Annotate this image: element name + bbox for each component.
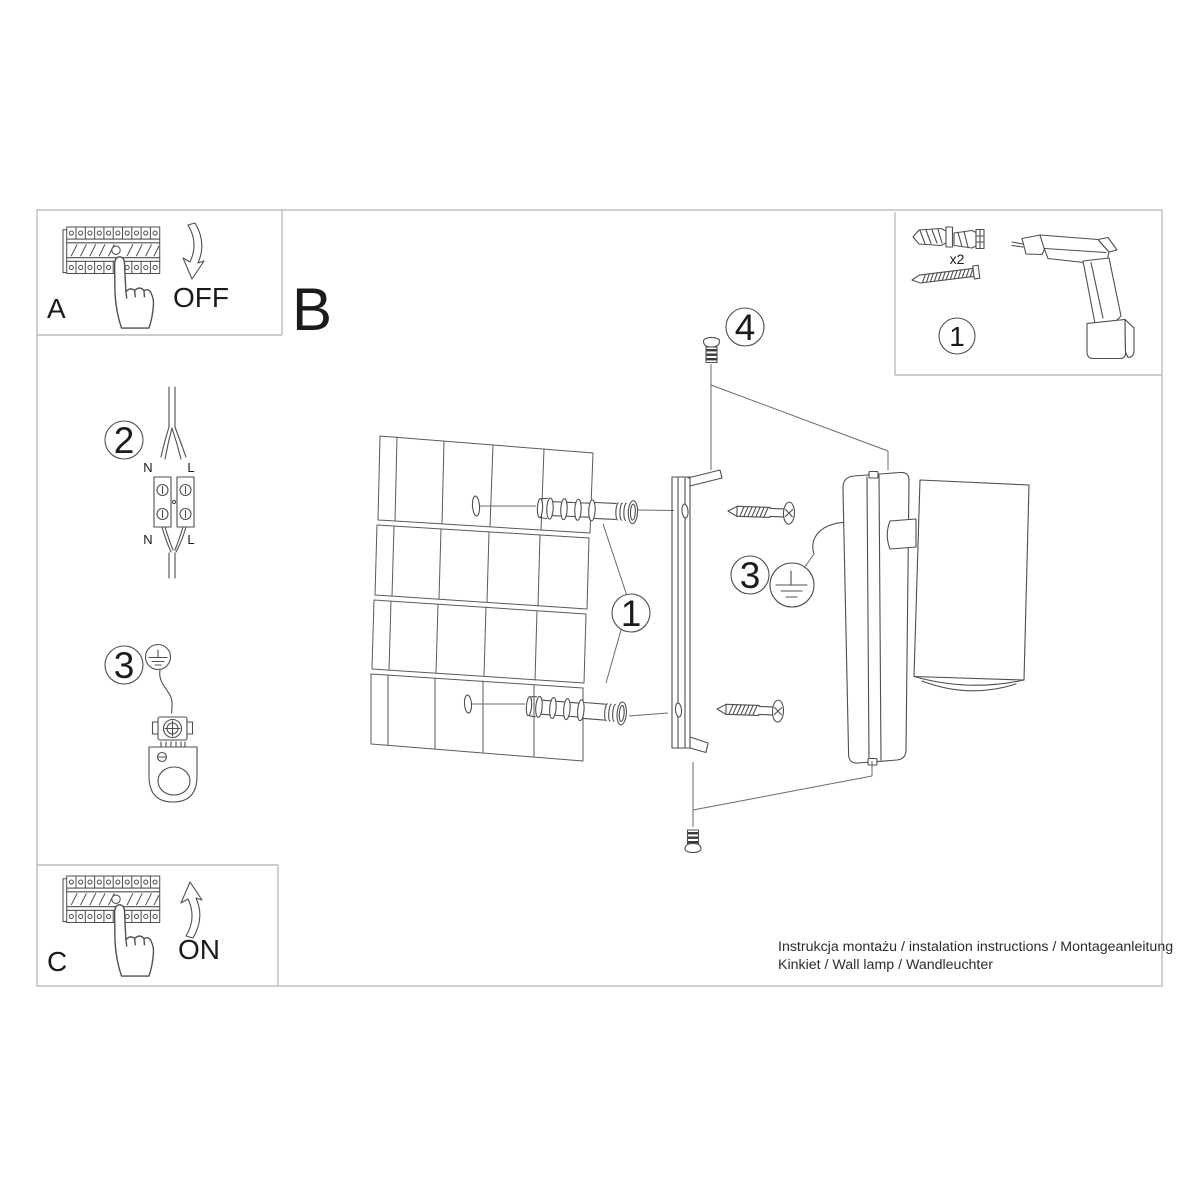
fixing-screw-bottom xyxy=(685,830,701,853)
tile-wall xyxy=(371,436,593,761)
lamp-bracket-piece xyxy=(149,747,197,802)
cable-top xyxy=(169,387,175,427)
drill-icon xyxy=(1012,235,1134,359)
panel-c-label: C xyxy=(47,946,67,977)
leader-screw-top xyxy=(711,364,888,470)
cable-bottom xyxy=(169,553,175,578)
quantity-label: x2 xyxy=(950,251,965,267)
wall-plug-assembly-bottom xyxy=(525,694,627,725)
panel-b-label: B xyxy=(292,276,332,343)
leader-ground xyxy=(804,554,814,568)
wall-plug-icon xyxy=(913,227,953,247)
earth-clamp xyxy=(153,717,193,747)
wall-plug-icon-2 xyxy=(954,230,984,249)
footer-line-2: Kinkiet / Wall lamp / Wandleuchter xyxy=(778,957,993,973)
callout-top-screw: 4 xyxy=(726,307,764,348)
lamp-back-plate xyxy=(843,472,909,763)
panel-a-label: A xyxy=(47,293,66,324)
step-grounding: 3 xyxy=(105,645,197,803)
wires-split-top xyxy=(161,427,186,459)
mounting-screw-bottom xyxy=(717,698,784,722)
bracket-hole-top xyxy=(681,504,688,518)
callout-number: 1 xyxy=(621,593,642,634)
arrow-down-icon xyxy=(183,223,204,279)
power-on-label: ON xyxy=(178,934,220,965)
lamp-arm xyxy=(887,519,916,549)
earth-symbol-icon xyxy=(146,645,171,670)
ground-wire xyxy=(813,523,845,554)
wire-label-l-bottom: L xyxy=(187,532,194,547)
wire-label-n-top: N xyxy=(143,460,152,475)
screw-icon xyxy=(911,265,980,286)
wire-label-l-top: L xyxy=(187,460,194,475)
instruction-sheet: A OFF 2 N L N L 3 xyxy=(0,0,1200,1200)
exploded-view: 1 3 xyxy=(371,307,1029,853)
bracket-hole-bottom xyxy=(675,703,682,717)
drill-hole-top xyxy=(472,496,480,516)
wires-merge-bottom xyxy=(162,527,186,552)
mounting-bracket xyxy=(672,470,722,753)
mounting-screw-top xyxy=(728,500,795,524)
callout-number: 4 xyxy=(735,307,756,348)
wall-plug-assembly-top xyxy=(537,496,638,523)
callout-plugs: 1 xyxy=(603,524,650,683)
circuit-breaker-icon xyxy=(63,227,160,274)
earth-symbol-icon xyxy=(770,563,814,607)
footer: Instrukcja montażu / instalation instruc… xyxy=(778,939,1173,973)
callout-ground: 3 xyxy=(731,523,845,607)
leader-screw-bottom xyxy=(693,761,872,827)
lamp-body xyxy=(843,472,1029,766)
earth-wire xyxy=(160,670,172,713)
step-number: 1 xyxy=(949,321,965,352)
step-wiring: 2 N L N L xyxy=(105,387,195,578)
callout-number: 3 xyxy=(740,555,761,596)
footer-line-1: Instrukcja montażu / instalation instruc… xyxy=(778,939,1173,955)
fixing-screw-top xyxy=(704,337,720,362)
installation-diagram: A OFF 2 N L N L 3 xyxy=(0,0,1200,1200)
power-off-label: OFF xyxy=(173,282,229,313)
panel-tools: x2 1 xyxy=(911,227,1134,359)
panel-c: C ON xyxy=(47,876,220,977)
lamp-cylinder xyxy=(914,480,1029,685)
wire-label-n-bottom: N xyxy=(143,532,152,547)
step-number: 3 xyxy=(114,645,135,686)
panel-a: A OFF xyxy=(47,223,229,328)
drill-hole-bottom xyxy=(464,695,472,713)
circuit-breaker-icon xyxy=(63,876,160,923)
step-number: 2 xyxy=(114,420,135,461)
arrow-up-icon xyxy=(181,882,202,938)
